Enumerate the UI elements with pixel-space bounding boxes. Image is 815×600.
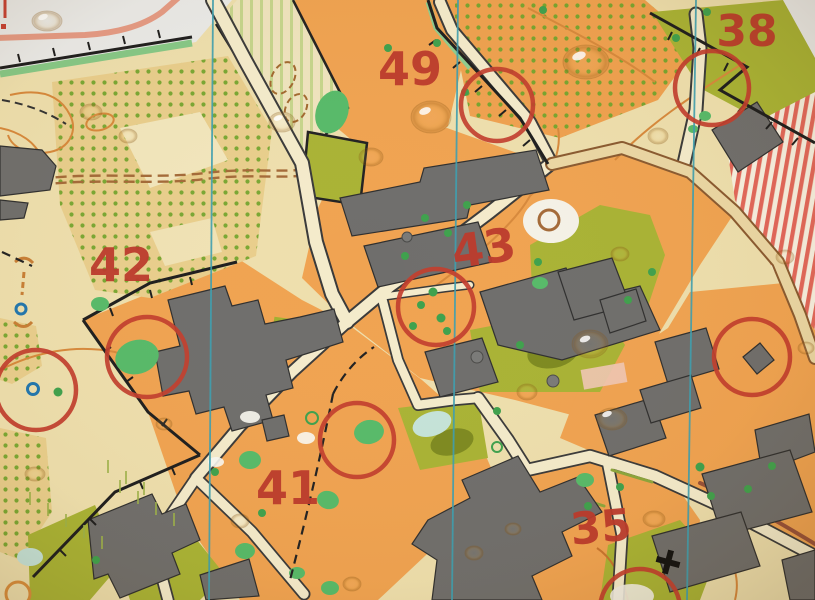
- orienteering-map: 49 38 42 43 41 35: [0, 0, 815, 600]
- photo-vignette: [0, 0, 815, 600]
- map-photo: 49 38 42 43 41 35: [0, 0, 815, 600]
